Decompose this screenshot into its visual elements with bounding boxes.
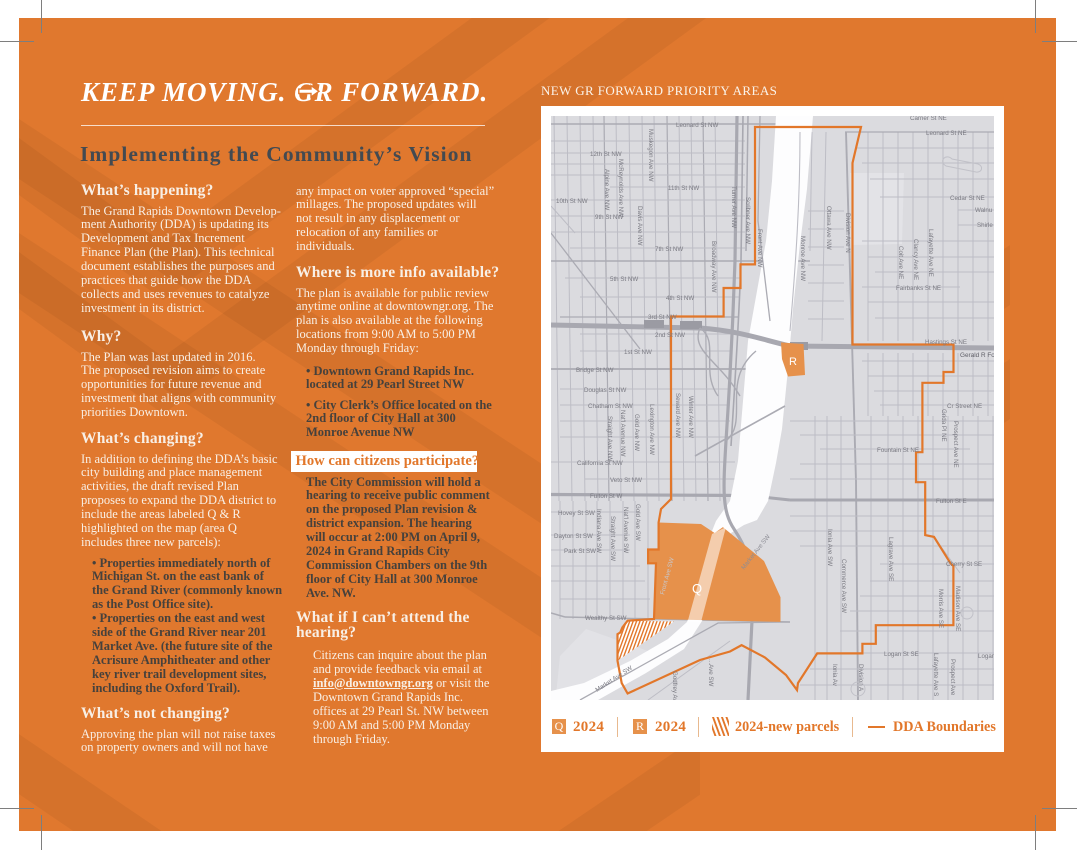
- svg-text:Fulton St W: Fulton St W: [590, 493, 622, 500]
- svg-text:Lafayette Ave S: Lafayette Ave S: [932, 653, 939, 696]
- svg-text:Ionia Av: Ionia Av: [831, 664, 838, 687]
- svg-text:Madison Ave SE: Madison Ave SE: [954, 586, 961, 631]
- svg-text:Carrier St NE: Carrier St NE: [910, 116, 947, 122]
- svg-text:Straight Ave NW: Straight Ave NW: [606, 416, 613, 461]
- svg-text:R: R: [789, 356, 797, 368]
- svg-text:12th St NW: 12th St NW: [590, 151, 622, 158]
- svg-text:Straight Ave SW: Straight Ave SW: [609, 516, 616, 561]
- svg-text:Walnu: Walnu: [975, 207, 993, 214]
- svg-text:Grida Pl NE: Grida Pl NE: [940, 409, 947, 442]
- svg-text:Winter Ave NW: Winter Ave NW: [687, 396, 694, 438]
- svg-text:Q: Q: [692, 581, 702, 596]
- svg-text:Leonard St NE: Leonard St NE: [926, 130, 967, 137]
- svg-text:Monroe Ave NW: Monroe Ave NW: [799, 236, 806, 281]
- svg-text:3rd St NW: 3rd St NW: [648, 314, 677, 321]
- svg-text:Cherry St SE: Cherry St SE: [946, 561, 982, 568]
- svg-text:Gerald R Ford: Gerald R Ford: [960, 352, 994, 359]
- svg-text:Logan St S: Logan St S: [978, 653, 994, 660]
- svg-text:7th St NW: 7th St NW: [655, 246, 683, 253]
- svg-text:Turner Ave NW: Turner Ave NW: [730, 186, 737, 228]
- svg-text:2nd St NW: 2nd St NW: [655, 332, 685, 339]
- svg-text:Nat'l Avenue NW: Nat'l Avenue NW: [619, 410, 626, 457]
- svg-text:Lafayette Ave NE: Lafayette Ave NE: [927, 229, 934, 277]
- svg-text:Coit Ave NE: Coit Ave NE: [897, 246, 904, 279]
- svg-text:Dayton St SW: Dayton St SW: [554, 533, 593, 540]
- svg-text:Lexington Ave NW: Lexington Ave NW: [648, 404, 655, 455]
- svg-text:4th St NW: 4th St NW: [666, 295, 694, 302]
- svg-text:Broadway Ave NW: Broadway Ave NW: [710, 241, 717, 293]
- svg-text:Muskegon Ave NW: Muskegon Ave NW: [647, 129, 654, 182]
- svg-text:Godfrey Av: Godfrey Av: [671, 671, 678, 700]
- svg-text:Ionia Ave SW: Ionia Ave SW: [826, 529, 833, 566]
- svg-text:Division Ave N: Division Ave N: [844, 213, 851, 253]
- svg-text:Fulton St E: Fulton St E: [936, 498, 967, 505]
- svg-text:Prospect Ave: Prospect Ave: [949, 659, 956, 696]
- svg-text:Morris Ave SE: Morris Ave SE: [937, 589, 944, 628]
- svg-text:Hastings St NE: Hastings St NE: [925, 339, 967, 346]
- svg-text:Leonard St NW: Leonard St NW: [676, 122, 718, 129]
- svg-text:Fountain St NE: Fountain St NE: [877, 447, 919, 454]
- svg-text:5th St NW: 5th St NW: [610, 276, 638, 283]
- svg-text:Division A: Division A: [857, 664, 864, 692]
- svg-text:Lagrave Ave SE: Lagrave Ave SE: [887, 537, 894, 581]
- svg-text:Ottawa Ave NW: Ottawa Ave NW: [825, 206, 832, 250]
- svg-text:Cr Street NE: Cr Street NE: [947, 403, 982, 410]
- svg-text:Davis Ave NW: Davis Ave NW: [636, 206, 643, 246]
- svg-text:Prospect Ave NE: Prospect Ave NE: [952, 421, 959, 468]
- svg-text:Nat'l Avenue SW: Nat'l Avenue SW: [622, 507, 629, 553]
- svg-text:McReynolds Ave NW: McReynolds Ave NW: [617, 159, 624, 217]
- svg-text:Indiana Ave SW: Indiana Ave SW: [595, 509, 602, 553]
- svg-text:Gold Ave SW: Gold Ave SW: [634, 504, 641, 541]
- svg-text:Commerce Ave SW: Commerce Ave SW: [840, 559, 847, 613]
- svg-text:Veto St NW: Veto St NW: [610, 477, 642, 484]
- svg-text:Bridge St NW: Bridge St NW: [576, 367, 614, 374]
- svg-text:Clancy Ave NE: Clancy Ave NE: [912, 239, 919, 280]
- svg-text:Park St SW: Park St SW: [564, 548, 596, 555]
- svg-text:Douglas St NW: Douglas St NW: [584, 387, 626, 394]
- svg-text:California St NW: California St NW: [577, 460, 623, 467]
- svg-text:Chatham St NW: Chatham St NW: [588, 403, 633, 410]
- svg-text:Gold Ave NW: Gold Ave NW: [633, 414, 640, 451]
- svg-text:Scribner Ave NW: Scribner Ave NW: [744, 197, 751, 244]
- svg-text:Wealthy St SW: Wealthy St SW: [585, 615, 627, 622]
- svg-text:Logan St SE: Logan St SE: [884, 651, 919, 658]
- svg-text:11th St NW: 11th St NW: [668, 185, 699, 192]
- svg-text:Cedar St NE: Cedar St NE: [950, 195, 985, 202]
- svg-text:Fairbanks St NE: Fairbanks St NE: [896, 285, 941, 292]
- svg-text:10th St NW: 10th St NW: [556, 198, 588, 205]
- svg-text:Shirle: Shirle: [977, 222, 993, 229]
- svg-text:Alpine Ave NW: Alpine Ave NW: [603, 169, 610, 210]
- svg-text:Seward Ave NW: Seward Ave NW: [674, 393, 681, 438]
- svg-text:Front Ave NW: Front Ave NW: [756, 229, 763, 268]
- svg-text:...Ave SW: ...Ave SW: [707, 659, 714, 687]
- svg-text:1st St NW: 1st St NW: [624, 349, 652, 356]
- svg-text:Hovey St SW: Hovey St SW: [558, 510, 595, 517]
